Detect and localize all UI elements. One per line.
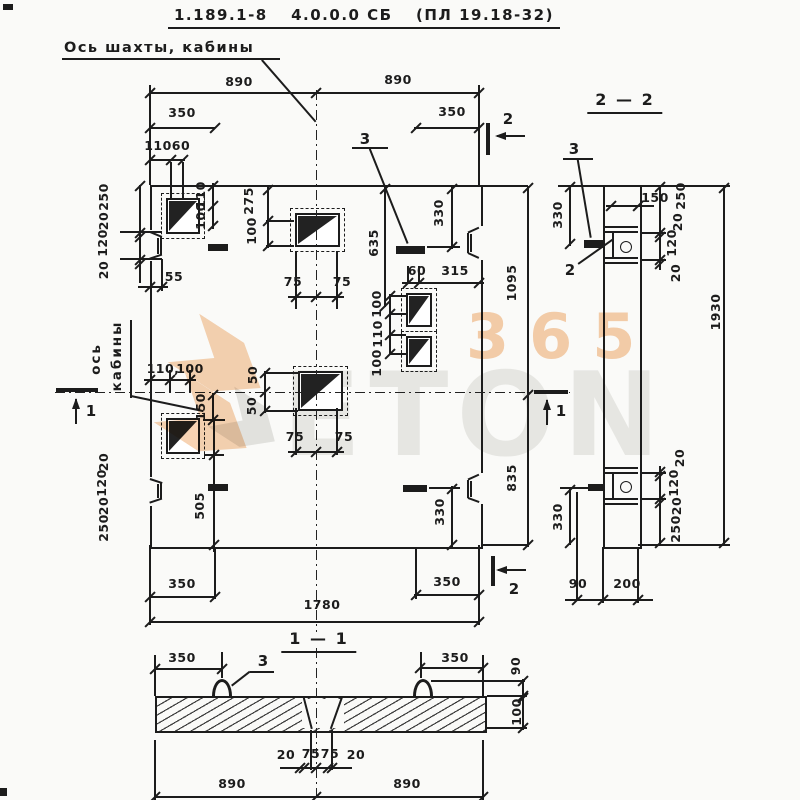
dim-label: 635 [368, 229, 381, 257]
leader-line [232, 671, 251, 686]
dim-label: 55 [165, 271, 183, 284]
axis-note: Ось шахты, кабины [62, 40, 280, 60]
dim-label: 100 [195, 202, 208, 230]
dim-label: 330 [552, 201, 565, 229]
dim-label: 890 [225, 76, 253, 89]
dim-label: 200 [613, 578, 641, 591]
dim-label: 120 [666, 229, 679, 257]
lifting-loop [413, 679, 433, 696]
axis-line [316, 648, 317, 798]
embedded-bar [208, 484, 228, 491]
dim-line [150, 596, 215, 598]
dim-label: 250 [675, 182, 688, 210]
dim-line [467, 233, 469, 253]
embedded-bar [208, 244, 228, 251]
dim-label: 100 [371, 349, 384, 377]
dim-label: 1780 [304, 599, 341, 612]
dim-line [170, 162, 172, 198]
dim-label: 350 [168, 107, 196, 120]
dim-line [427, 246, 460, 248]
detail-circle [620, 241, 632, 253]
dim-label: 110 [144, 140, 172, 153]
dim-line [569, 185, 571, 246]
dim-line [160, 483, 162, 499]
title-product: (ПЛ 19.18-32) [416, 6, 554, 24]
dim-line [154, 740, 156, 800]
embedded-bar [403, 485, 427, 492]
dim-line [431, 680, 525, 682]
dim-line [603, 498, 638, 500]
dim-label: 250 [98, 183, 111, 211]
dim-line [478, 545, 480, 625]
dim-line [390, 313, 406, 315]
axis-line [55, 392, 570, 393]
cut-mark-2-bottom: 2 [509, 580, 519, 598]
dim-line [214, 547, 216, 599]
dim-line [267, 185, 269, 248]
dim-label: 150 [195, 393, 208, 421]
dim-label: 110 [372, 320, 385, 348]
dim-label: 75 [302, 748, 320, 761]
dim-line [157, 238, 159, 254]
dim-label: 350 [168, 578, 196, 591]
dim-label: 20 [671, 497, 684, 515]
dim-line [482, 740, 484, 800]
dim-line [160, 237, 162, 255]
dim-line [603, 257, 638, 259]
dim-line [659, 466, 661, 545]
dim-line [451, 187, 453, 249]
callout-3-plan: 3 [360, 130, 370, 148]
dim-label: 60 [172, 140, 190, 153]
dim-line [603, 226, 638, 228]
dim-line [483, 544, 528, 546]
dim-label: 20 [670, 264, 683, 282]
dim-line [150, 621, 480, 623]
dim-line [467, 480, 469, 498]
dim-line [482, 655, 484, 696]
dim-label: 890 [218, 778, 246, 791]
arrowhead [543, 399, 551, 410]
dim-line [470, 481, 472, 497]
embedded-bar [491, 556, 495, 586]
dim-label: 50 [247, 366, 260, 384]
dim-line [603, 472, 638, 474]
dim-line [429, 487, 460, 489]
embedded-plate [406, 293, 432, 327]
dim-line [606, 205, 654, 207]
dim-line [265, 372, 298, 374]
dim-line [414, 594, 479, 596]
mask [478, 473, 484, 504]
callout-3-section11: 3 [258, 652, 268, 670]
dim-line [470, 234, 472, 252]
embedded-plate [298, 371, 343, 411]
dim-line [478, 85, 480, 185]
drawing-canvas: ETON 1.189.1-8 4.0.0.0 СБ (ПЛ 19.18-32) … [0, 0, 800, 800]
axis-label-os: ось [88, 343, 104, 375]
dim-line [266, 245, 294, 247]
arrowhead [496, 566, 507, 574]
dim-label: 250 [670, 515, 683, 543]
dim-label: 890 [384, 74, 412, 87]
dim-label: 20 [98, 212, 111, 230]
dim-label: 20 [347, 749, 365, 762]
dim-label: 50 [246, 397, 259, 415]
dim-line [481, 185, 528, 187]
dim-label: 890 [393, 778, 421, 791]
dim-label: 350 [438, 106, 466, 119]
dim-label: 150 [641, 192, 669, 205]
arrowhead [495, 132, 506, 140]
dim-line [612, 473, 614, 499]
dim-line [390, 353, 406, 355]
embedded-bar [3, 4, 13, 10]
dim-line [265, 410, 298, 412]
dim-line [384, 187, 386, 307]
dim-line [603, 231, 638, 233]
dim-label: 75 [284, 276, 302, 289]
dim-line [603, 503, 638, 505]
dim-line [638, 544, 730, 546]
axis-line [316, 90, 317, 632]
dim-label: 75 [321, 748, 339, 761]
dim-line [150, 127, 215, 129]
dim-line [612, 232, 614, 258]
embedded-bar [588, 484, 603, 491]
dim-line [389, 294, 391, 355]
dim-label: 100 [246, 217, 259, 245]
dim-label: 1930 [710, 294, 723, 331]
dim-label: 120 [97, 229, 110, 257]
dim-line [420, 667, 483, 669]
dim-label: 90 [510, 657, 523, 675]
dim-label: 250 [98, 514, 111, 542]
dim-line [130, 320, 132, 398]
dim-label: 505 [194, 492, 207, 520]
dim-label: 350 [433, 576, 461, 589]
embedded-plate [406, 336, 432, 367]
dim-label: 120 [668, 469, 681, 497]
dim-line [56, 388, 98, 392]
dim-label: 20 [98, 497, 111, 515]
dim-label: 90 [569, 578, 587, 591]
dim-line [558, 185, 603, 187]
dim-label: 1095 [506, 265, 519, 302]
dim-line [266, 220, 294, 222]
section-title-1-1: 1 — 1 [281, 629, 356, 653]
lifting-loop [212, 679, 232, 696]
embedded-bar [486, 123, 490, 155]
dim-line [723, 186, 725, 545]
dim-label: 75 [286, 431, 304, 444]
dim-label: 330 [434, 498, 447, 526]
dim-label: 110, [147, 363, 180, 376]
embedded-bar [396, 246, 425, 254]
dim-line [221, 652, 223, 678]
dim-label: 350 [441, 652, 469, 665]
embedded-bar [0, 788, 7, 796]
dim-line [154, 655, 156, 696]
dim-line [451, 486, 453, 547]
dim-line [182, 162, 184, 198]
dim-line [149, 85, 151, 185]
dim-line [390, 334, 406, 336]
dim-label: 20 [277, 749, 295, 762]
dim-line [534, 390, 568, 394]
dim-label: 100 [371, 290, 384, 318]
section-title-2-2: 2 — 2 [587, 90, 662, 114]
title-series: 1.189.1-8 [174, 6, 268, 24]
dim-line [155, 796, 483, 798]
dim-label: 275 [243, 187, 256, 215]
leader-line [261, 60, 316, 123]
cut-mark-1-left: 1 [86, 402, 96, 420]
dim-label: 835 [506, 464, 519, 492]
dim-line [157, 484, 159, 498]
dim-line [560, 487, 588, 489]
dim-line [390, 295, 406, 297]
mask [478, 226, 484, 260]
dim-line [155, 668, 222, 670]
dim-label: 120 [96, 469, 109, 497]
dim-label: 75 [333, 276, 351, 289]
dim-line [250, 671, 274, 673]
dim-label: 100 [176, 363, 204, 376]
dim-label: 100 [511, 698, 524, 726]
dim-label: 330 [433, 199, 446, 227]
leader-line [577, 160, 591, 238]
dim-line [402, 282, 484, 284]
dim-line [527, 186, 529, 547]
dim-line [602, 547, 604, 603]
dim-label: 60 [408, 265, 426, 278]
title-set: 4.0.0.0 СБ [291, 6, 393, 24]
dim-label: 330 [552, 503, 565, 531]
arrowhead [72, 398, 80, 409]
embedded-plate [295, 213, 340, 247]
callout-3-section22: 3 [569, 140, 579, 158]
drawing-title: 1.189.1-8 4.0.0.0 СБ (ПЛ 19.18-32) [168, 6, 560, 29]
dim-label: 20 [674, 449, 687, 467]
dim-label: 20 [98, 261, 111, 279]
cut-mark-2-top: 2 [503, 110, 513, 128]
axis-label-kabiny: кабины [109, 321, 125, 392]
callout-2-detail: 2 [565, 261, 575, 279]
cut-mark-1-right: 1 [556, 402, 566, 420]
dim-label: 75 [335, 431, 353, 444]
detail-circle [620, 481, 632, 493]
dim-line [603, 467, 638, 469]
dim-label: 315 [441, 265, 469, 278]
dim-line [149, 545, 151, 625]
dim-line [414, 127, 479, 129]
dim-label: 350 [168, 652, 196, 665]
embedded-plate [166, 418, 200, 454]
dim-line [603, 262, 638, 264]
dim-line [569, 488, 571, 545]
